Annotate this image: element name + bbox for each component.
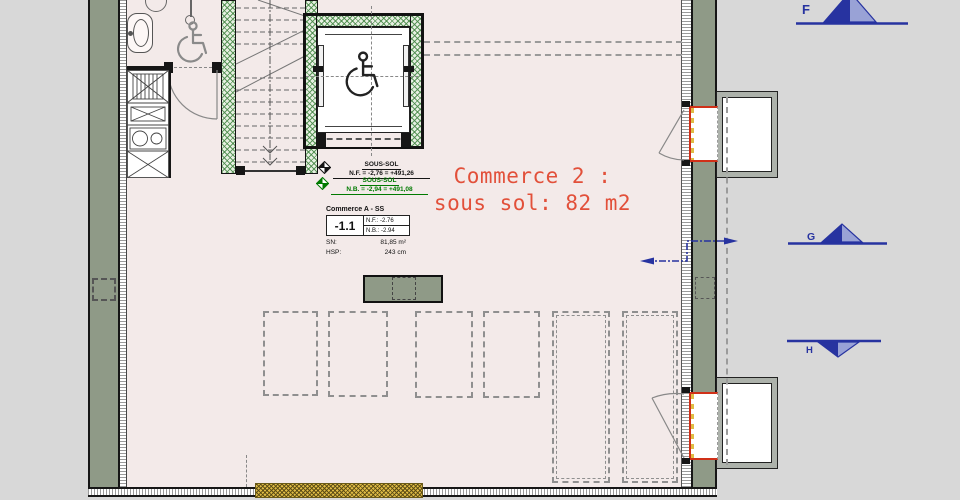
kitchen-partition [169,70,171,178]
column-dashed-square [392,277,416,300]
level-name: SOUS-SOL [362,161,402,170]
storage-bay [415,311,473,398]
hsp-value: 243 cm [385,249,406,256]
door-swing-icon [648,100,688,164]
stair-bottom-line [236,170,305,172]
level-benchmark-icon [316,177,329,190]
stair-wall-left [221,0,236,174]
room-label-line2: sous sol: 82 m2 [415,190,650,217]
sink-tap [128,31,133,36]
beam-dashed-line-1 [424,41,682,43]
left-wall-insulation [120,0,127,488]
elevator-sill-left [317,133,326,147]
section-marker-g: G [786,222,898,248]
sn-value: 81,85 m² [380,239,406,246]
section-marker-h: H [783,331,893,363]
storage-bay [328,311,388,397]
left-wall [90,0,118,497]
level-name: SOUS-SOL [360,177,400,186]
beam-dashed-line-2 [424,54,682,56]
staircase [236,0,305,172]
elevator-wall-left [305,15,317,147]
sink-basin [133,19,149,47]
section-marker-f: F [788,0,918,30]
level-value: N.B. = -2,94 = +491,08 [331,186,428,195]
unit-hsp-row: HSP: 243 cm [326,249,406,256]
unit-table: -1.1 N.F.: -2.76 N.B.: -2.94 [326,215,410,236]
level-marker-nb: SOUS-SOL N.B. = -2,94 = +491,08 [316,177,428,195]
sn-label: SN: [326,239,337,246]
flow-arrow [640,230,740,266]
section-letter: G [807,231,815,243]
level-benchmark-icon [318,161,331,174]
bottom-wall-insulation-band [255,483,423,498]
kitchen-unit [127,70,169,178]
door-opening-bottom [689,392,718,460]
stair-jamb-right [296,166,305,175]
elevator-track-top [325,34,402,35]
floorplan-canvas: SOUS-SOL N.F. = -2,76 = +491,26 SOUS-SOL… [0,0,960,500]
bottom-hidden-line [246,455,247,487]
unit-nf: N.F.: -2.76 [364,216,409,226]
door-swing-icon [648,390,688,462]
unit-title: Commerce A - SS [326,206,410,213]
section-letter: F [802,2,810,17]
unit-nb: N.B.: -2.94 [364,226,409,235]
room-label: Commerce 2 : sous sol: 82 m2 [415,163,650,217]
wheelchair-icon [172,20,212,64]
right-wall-dashed-square [695,277,715,299]
exterior-dashed-line [726,97,728,465]
room-label-line1: Commerce 2 : [415,163,650,190]
wall-dashed-square [92,278,116,301]
unit-sn-row: SN: 81,85 m² [326,239,406,246]
elevator-jamb-left [313,66,323,72]
door-opening-top [689,106,718,162]
storage-bay-tall [552,311,610,483]
elevator-wall-right [410,15,422,147]
elevator-track-bottom [325,126,402,127]
elevator-sill-dashes [317,138,410,140]
sink-icon [127,13,153,53]
unit-number: -1.1 [327,216,364,235]
elevator-sill-right [401,133,410,147]
column-block [363,275,443,303]
storage-bay [263,311,318,396]
section-letter: H [806,345,813,356]
unit-info-box: Commerce A - SS -1.1 N.F.: -2.76 N.B.: -… [326,206,410,256]
stair-jamb-left [236,166,245,175]
hsp-label: HSP: [326,249,341,256]
elevator-wall-top [305,15,422,27]
elevator-jamb-right [404,66,414,72]
storage-bay [483,311,540,398]
wheelchair-icon [340,50,384,98]
